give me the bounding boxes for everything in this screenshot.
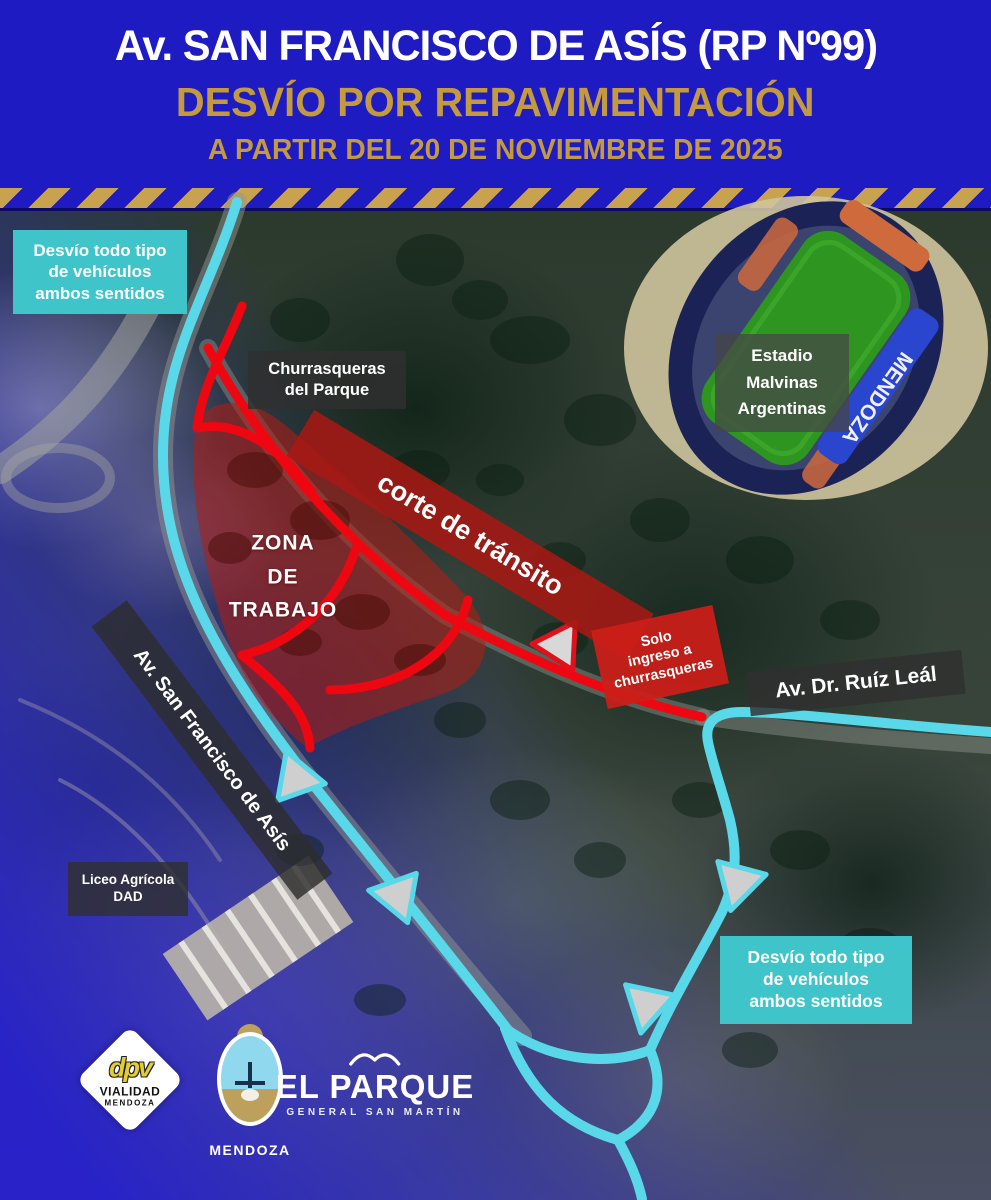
page-subtitle: DESVÍO POR REPAVIMENTACIÓN: [176, 79, 815, 126]
dpv-mendoza-text: MENDOZA: [85, 1099, 175, 1108]
crest-oval: [217, 1032, 283, 1126]
park-name: EL PARQUE: [276, 1070, 474, 1103]
liceo-label: Liceo Agrícola DAD: [68, 862, 188, 916]
effective-date: A PARTIR DEL 20 DE NOVIEMBRE DE 2025: [208, 134, 783, 167]
park-subtitle: GENERAL SAN MARTÍN: [276, 1107, 474, 1118]
mendoza-crest-logo: [215, 1030, 285, 1126]
hazard-stripe: [0, 188, 991, 211]
dpv-vialidad-text: VIALIDAD: [85, 1085, 175, 1099]
detour-poster: Av. SAN FRANCISCO DE ASÍS (RP Nº99) DESV…: [0, 0, 991, 1200]
mendoza-caption: MENDOZA: [209, 1142, 290, 1158]
bird-icon: [345, 1046, 405, 1068]
detour-note-bottom: Desvío todo tipo de vehículos ambos sent…: [720, 936, 912, 1024]
detour-note-top: Desvío todo tipo de vehículos ambos sent…: [13, 230, 187, 314]
churrasqueras-label: Churrasqueras del Parque: [248, 351, 406, 409]
dpv-monogram: dpv: [85, 1053, 175, 1084]
header-banner: Av. SAN FRANCISCO DE ASÍS (RP Nº99) DESV…: [0, 0, 991, 188]
stadium-label: Estadio Malvinas Argentinas: [715, 334, 849, 432]
page-title: Av. SAN FRANCISCO DE ASÍS (RP Nº99): [114, 22, 876, 71]
el-parque-logo: EL PARQUE GENERAL SAN MARTÍN: [276, 1046, 474, 1118]
work-zone-label: ZONA DE TRABAJO: [198, 527, 368, 628]
